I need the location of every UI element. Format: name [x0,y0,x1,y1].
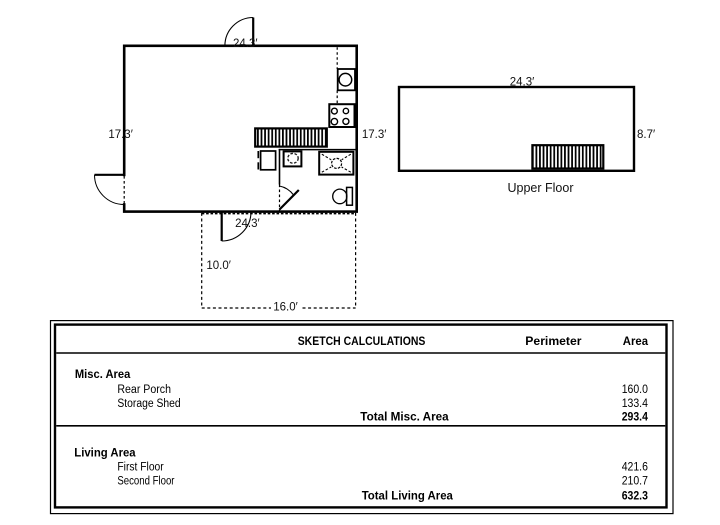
svg-text:16.0′: 16.0′ [273,302,298,314]
svg-text:17.3′: 17.3′ [108,129,133,141]
svg-text:Perimeter: Perimeter [525,336,582,348]
svg-text:17.3′: 17.3′ [362,129,387,141]
svg-text:Total Misc. Area: Total Misc. Area [360,412,449,424]
svg-text:Storage Shed: Storage Shed [117,398,180,410]
svg-text:24.3′: 24.3′ [235,218,260,230]
svg-text:632.3: 632.3 [622,490,648,502]
svg-text:160.0: 160.0 [622,384,648,396]
svg-text:210.7: 210.7 [622,476,648,488]
svg-text:293.4: 293.4 [622,412,649,424]
svg-text:421.6: 421.6 [622,462,648,474]
svg-text:Misc. Area: Misc. Area [75,369,131,381]
svg-text:Total Living Area: Total Living Area [362,490,454,502]
svg-text:Area: Area [623,336,649,348]
svg-text:10.0′: 10.0′ [206,260,231,272]
svg-text:Living Area: Living Area [74,447,136,459]
svg-text:Rear Porch: Rear Porch [117,384,171,396]
svg-text:133.4: 133.4 [622,398,649,410]
svg-text:First Floor: First Floor [117,462,163,474]
svg-text:24.3′: 24.3′ [510,76,535,88]
svg-text:8.7′: 8.7′ [637,129,655,141]
svg-text:SKETCH CALCULATIONS: SKETCH CALCULATIONS [298,336,426,348]
svg-text:Second Floor: Second Floor [117,476,174,488]
svg-text:24.3′: 24.3′ [233,38,258,50]
svg-text:Upper Floor: Upper Floor [508,181,574,195]
